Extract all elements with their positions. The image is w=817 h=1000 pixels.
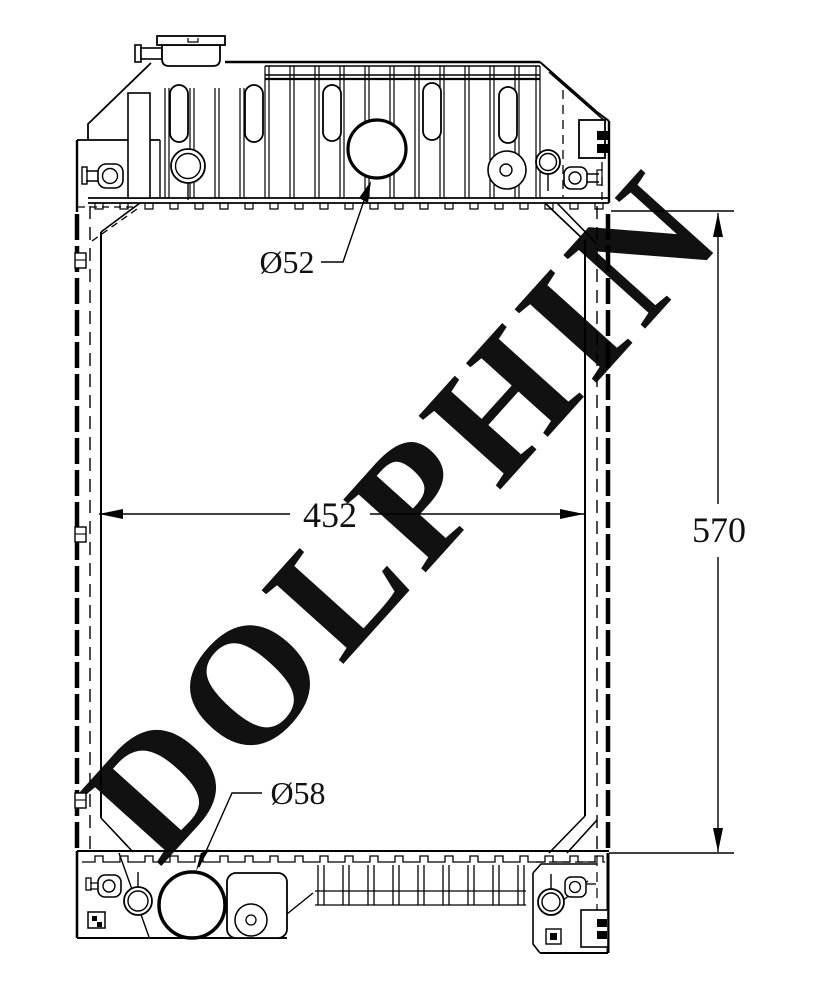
outlet-circle	[159, 872, 225, 938]
side-tabs	[75, 253, 86, 808]
top-left-ring	[171, 149, 205, 200]
label-outlet-diameter: Ø58	[270, 775, 325, 811]
bottom-ribs	[315, 865, 526, 905]
bottom-left-bolt	[86, 875, 121, 897]
label-core-width: 452	[303, 495, 357, 535]
label-core-height: 570	[692, 510, 746, 550]
bottom-left-anchor	[88, 912, 105, 928]
radiator-drawing: DOLPHIN	[0, 0, 817, 1000]
label-inlet-diameter: Ø52	[259, 244, 314, 280]
filler-neck	[135, 36, 225, 66]
top-disc	[488, 151, 526, 189]
top-tank	[77, 36, 609, 241]
leader-inlet	[321, 181, 371, 262]
top-left-bolt	[82, 164, 123, 188]
bottom-plate	[227, 873, 313, 938]
drawing-canvas: DOLPHIN	[0, 0, 817, 1000]
inlet-circle	[348, 120, 406, 178]
bottom-right-bracket	[533, 853, 608, 953]
